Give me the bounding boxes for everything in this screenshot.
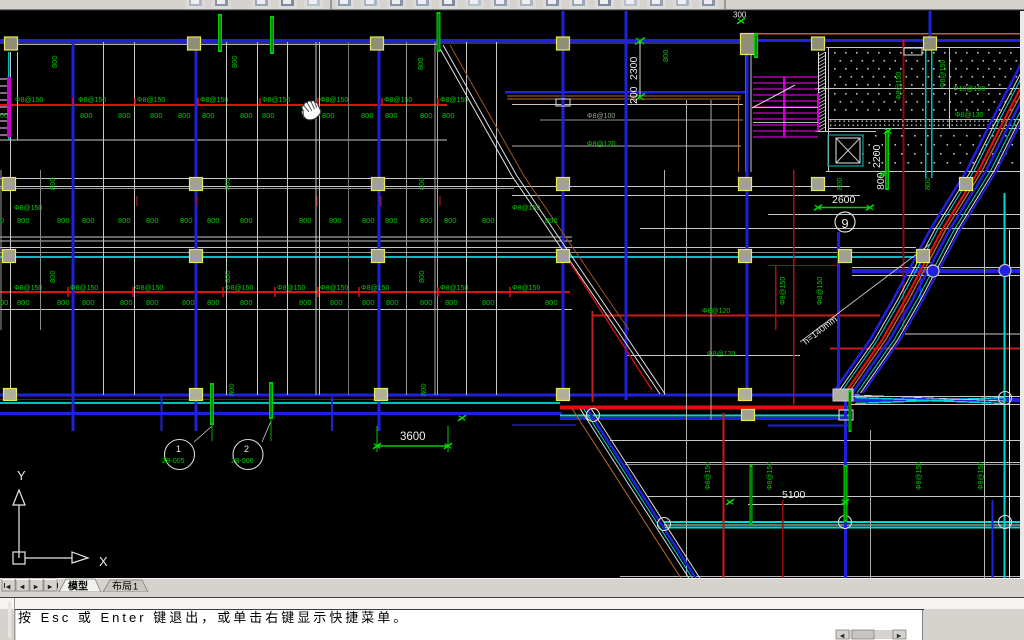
svg-text:800: 800 [57, 216, 70, 225]
svg-text:800: 800 [330, 298, 343, 307]
svg-text:800: 800 [240, 298, 253, 307]
svg-text:800: 800 [227, 383, 236, 396]
svg-text:800: 800 [322, 111, 335, 120]
svg-text:800: 800 [57, 298, 70, 307]
svg-text:Φ8@150: Φ8@150 [440, 97, 468, 104]
svg-text:800: 800 [80, 111, 93, 120]
svg-text:800: 800 [362, 298, 375, 307]
svg-text:Φ8@150: Φ8@150 [14, 285, 42, 292]
svg-text:◀: ◀ [20, 585, 25, 591]
svg-text:Φ8@150: Φ8@150 [705, 462, 712, 490]
svg-text:800: 800 [207, 298, 220, 307]
svg-text:800: 800 [329, 216, 342, 225]
svg-text:5100: 5100 [782, 489, 806, 501]
svg-text:◀: ◀ [840, 634, 845, 640]
svg-text:800: 800 [178, 111, 191, 120]
svg-text:800: 800 [385, 216, 398, 225]
svg-text:800: 800 [240, 216, 253, 225]
svg-text:Φ8@150: Φ8@150 [896, 72, 903, 100]
svg-text:Φ8@150: Φ8@150 [320, 285, 348, 292]
svg-text:布局: 布局 [112, 581, 132, 593]
svg-text:Φ8@150: Φ8@150 [277, 285, 305, 292]
svg-text:200: 200 [628, 86, 640, 104]
svg-text:800: 800 [661, 49, 670, 62]
svg-text:800: 800 [202, 111, 215, 120]
svg-text:▶: ▶ [34, 585, 39, 591]
svg-text:Φ8@150: Φ8@150 [225, 285, 253, 292]
svg-text:800: 800 [545, 216, 558, 225]
svg-text:800: 800 [416, 57, 425, 70]
svg-text:Φ8@120: Φ8@120 [587, 141, 615, 148]
svg-text:800: 800 [48, 177, 57, 190]
svg-text:0: 0 [0, 216, 4, 225]
svg-text:2600: 2600 [832, 194, 856, 206]
svg-text:Φ8@150: Φ8@150 [940, 60, 947, 88]
svg-text:模型: 模型 [68, 580, 88, 593]
svg-text:800: 800 [299, 298, 312, 307]
svg-text:Φ8@150: Φ8@150 [70, 285, 98, 292]
svg-text:800: 800 [82, 298, 95, 307]
svg-text:800: 800 [120, 298, 133, 307]
svg-text:800: 800 [182, 298, 195, 307]
svg-text:800: 800 [361, 111, 374, 120]
svg-text:Φ8@150: Φ8@150 [135, 285, 163, 292]
svg-text:3600: 3600 [400, 431, 426, 443]
svg-text:Φ8@150: Φ8@150 [320, 97, 348, 104]
svg-text:800: 800 [207, 216, 220, 225]
svg-text:800: 800 [146, 298, 159, 307]
svg-text:9: 9 [841, 216, 848, 231]
svg-text:Φ8@150: Φ8@150 [440, 285, 468, 292]
svg-text:Φ8@150: Φ8@150 [916, 462, 923, 490]
svg-text:800: 800 [482, 298, 495, 307]
svg-text:800: 800 [419, 383, 428, 396]
svg-text:2B-005: 2B-005 [162, 458, 185, 465]
svg-text:Φ8@150: Φ8@150 [78, 97, 106, 104]
svg-text:800: 800 [444, 216, 457, 225]
svg-text:800: 800 [445, 298, 458, 307]
svg-text:Φ8@150: Φ8@150 [137, 97, 165, 104]
svg-text:2300: 2300 [628, 56, 640, 80]
svg-text:800: 800 [146, 216, 159, 225]
svg-text:800: 800 [223, 270, 232, 283]
svg-text:1: 1 [176, 444, 181, 454]
svg-text:▶: ▶ [897, 634, 902, 640]
svg-text:Φ8@150: Φ8@150 [361, 285, 389, 292]
svg-text:Φ8@130: Φ8@130 [955, 112, 983, 119]
svg-text:800: 800 [223, 177, 232, 190]
svg-text:800: 800 [835, 177, 844, 190]
svg-text:2200: 2200 [871, 144, 883, 168]
svg-text:00: 00 [0, 298, 8, 307]
svg-text:800: 800 [420, 111, 433, 120]
svg-text:800: 800 [545, 298, 558, 307]
svg-text:Φ8@150: Φ8@150 [780, 277, 787, 305]
svg-text:800: 800 [417, 270, 426, 283]
svg-text:800: 800 [230, 55, 239, 68]
svg-text:800: 800 [150, 111, 163, 120]
svg-text:2: 2 [244, 444, 249, 454]
svg-text:Φ8@120: Φ8@120 [702, 308, 730, 315]
svg-text:按 Esc 或 Enter 键退出，或单击右键显示快捷菜单。: 按 Esc 或 Enter 键退出，或单击右键显示快捷菜单。 [18, 610, 409, 625]
svg-text:800: 800 [82, 216, 95, 225]
svg-text:Φ8@150: Φ8@150 [978, 462, 985, 490]
svg-text:00: 00 [0, 111, 8, 120]
svg-text:800: 800 [118, 111, 131, 120]
svg-text:Φ8@120: Φ8@120 [707, 351, 735, 358]
svg-text:1: 1 [133, 582, 138, 592]
svg-text:Φ8@150: Φ8@150 [15, 97, 43, 104]
svg-text:800: 800 [442, 111, 455, 120]
svg-text:Φ8@150: Φ8@150 [767, 462, 774, 490]
svg-text:800: 800 [417, 177, 426, 190]
svg-text:800: 800 [240, 111, 253, 120]
svg-text:800: 800 [386, 298, 399, 307]
svg-text:Φ8@150: Φ8@150 [262, 97, 290, 104]
svg-text:800: 800 [262, 111, 275, 120]
svg-text:Φ10@100: Φ10@100 [953, 86, 985, 93]
svg-text:Y: Y [17, 468, 26, 483]
svg-text:800: 800 [420, 298, 433, 307]
svg-text:Φ8@150: Φ8@150 [200, 97, 228, 104]
svg-text:800: 800 [362, 216, 375, 225]
svg-text:Φ8@100: Φ8@100 [587, 113, 615, 120]
svg-text:Φ8@150: Φ8@150 [512, 205, 540, 212]
svg-text:◀: ◀ [6, 585, 11, 591]
svg-text:800: 800 [17, 298, 30, 307]
svg-text:Φ8@150: Φ8@150 [14, 205, 42, 212]
svg-text:Φ8@150: Φ8@150 [817, 277, 824, 305]
svg-text:800: 800 [118, 216, 131, 225]
svg-text:▶: ▶ [48, 585, 53, 591]
svg-text:800: 800 [50, 55, 59, 68]
svg-text:800: 800 [17, 216, 30, 225]
svg-text:800: 800 [180, 216, 193, 225]
svg-text:Φ8@150: Φ8@150 [512, 285, 540, 292]
svg-text:800: 800 [385, 111, 398, 120]
svg-text:800: 800 [923, 177, 932, 190]
svg-text:800: 800 [482, 216, 495, 225]
svg-text:800: 800 [420, 216, 433, 225]
svg-text:800: 800 [48, 270, 57, 283]
svg-text:800: 800 [299, 216, 312, 225]
svg-text:Φ8@150: Φ8@150 [384, 97, 412, 104]
svg-text:X: X [99, 554, 108, 569]
svg-text:2B-006: 2B-006 [231, 458, 254, 465]
